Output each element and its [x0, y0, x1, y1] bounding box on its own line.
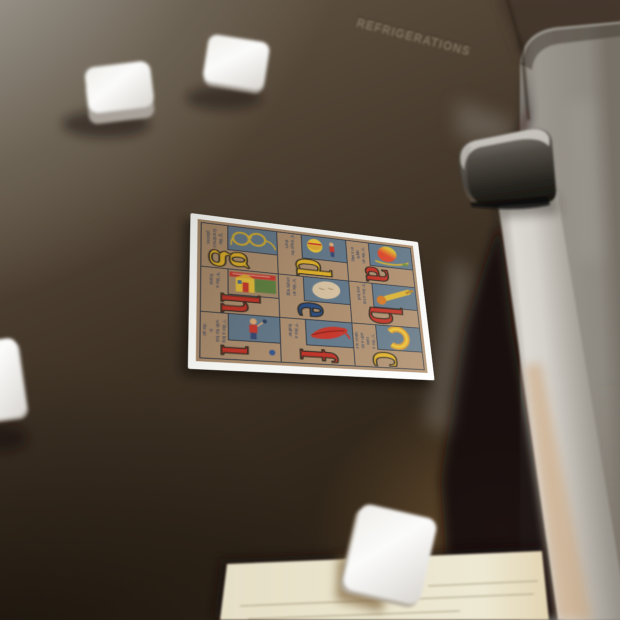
svg-text:REFRIGERATIONS: REFRIGERATIONS — [355, 18, 472, 59]
